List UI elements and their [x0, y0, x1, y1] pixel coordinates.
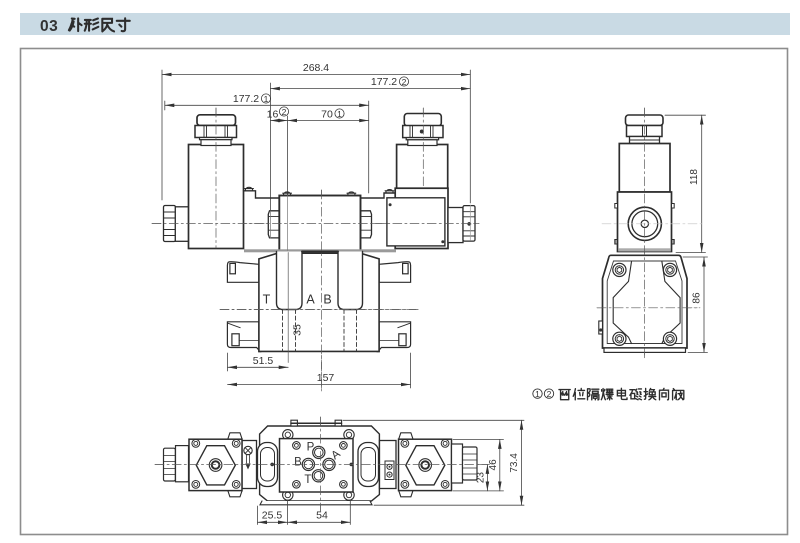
svg-text:23: 23: [475, 472, 486, 484]
svg-text:35: 35: [292, 324, 304, 336]
svg-text:118: 118: [689, 169, 700, 185]
svg-text:03: 03: [40, 18, 58, 35]
svg-text:P: P: [307, 442, 315, 454]
svg-text:B: B: [294, 456, 302, 468]
svg-text:T: T: [263, 293, 271, 307]
svg-text:268.4: 268.4: [303, 62, 329, 74]
svg-text:25.5: 25.5: [262, 509, 283, 521]
svg-text:177.2: 177.2: [371, 76, 397, 88]
svg-text:86: 86: [691, 292, 702, 304]
svg-text:2: 2: [547, 389, 552, 399]
svg-text:51.5: 51.5: [253, 355, 274, 367]
svg-text:177.2: 177.2: [233, 93, 259, 105]
svg-text:16: 16: [267, 109, 279, 121]
svg-text:70: 70: [321, 109, 333, 121]
svg-text:1: 1: [535, 389, 540, 399]
svg-text:54: 54: [316, 509, 328, 521]
svg-text:B: B: [323, 293, 331, 307]
svg-text:2: 2: [402, 77, 407, 87]
svg-text:2: 2: [282, 107, 287, 117]
svg-text:T: T: [304, 474, 311, 486]
svg-text:157: 157: [317, 372, 335, 384]
svg-text:1: 1: [264, 94, 269, 104]
svg-text:73.4: 73.4: [509, 453, 520, 473]
svg-text:1: 1: [337, 109, 342, 119]
svg-text:A: A: [306, 293, 315, 307]
